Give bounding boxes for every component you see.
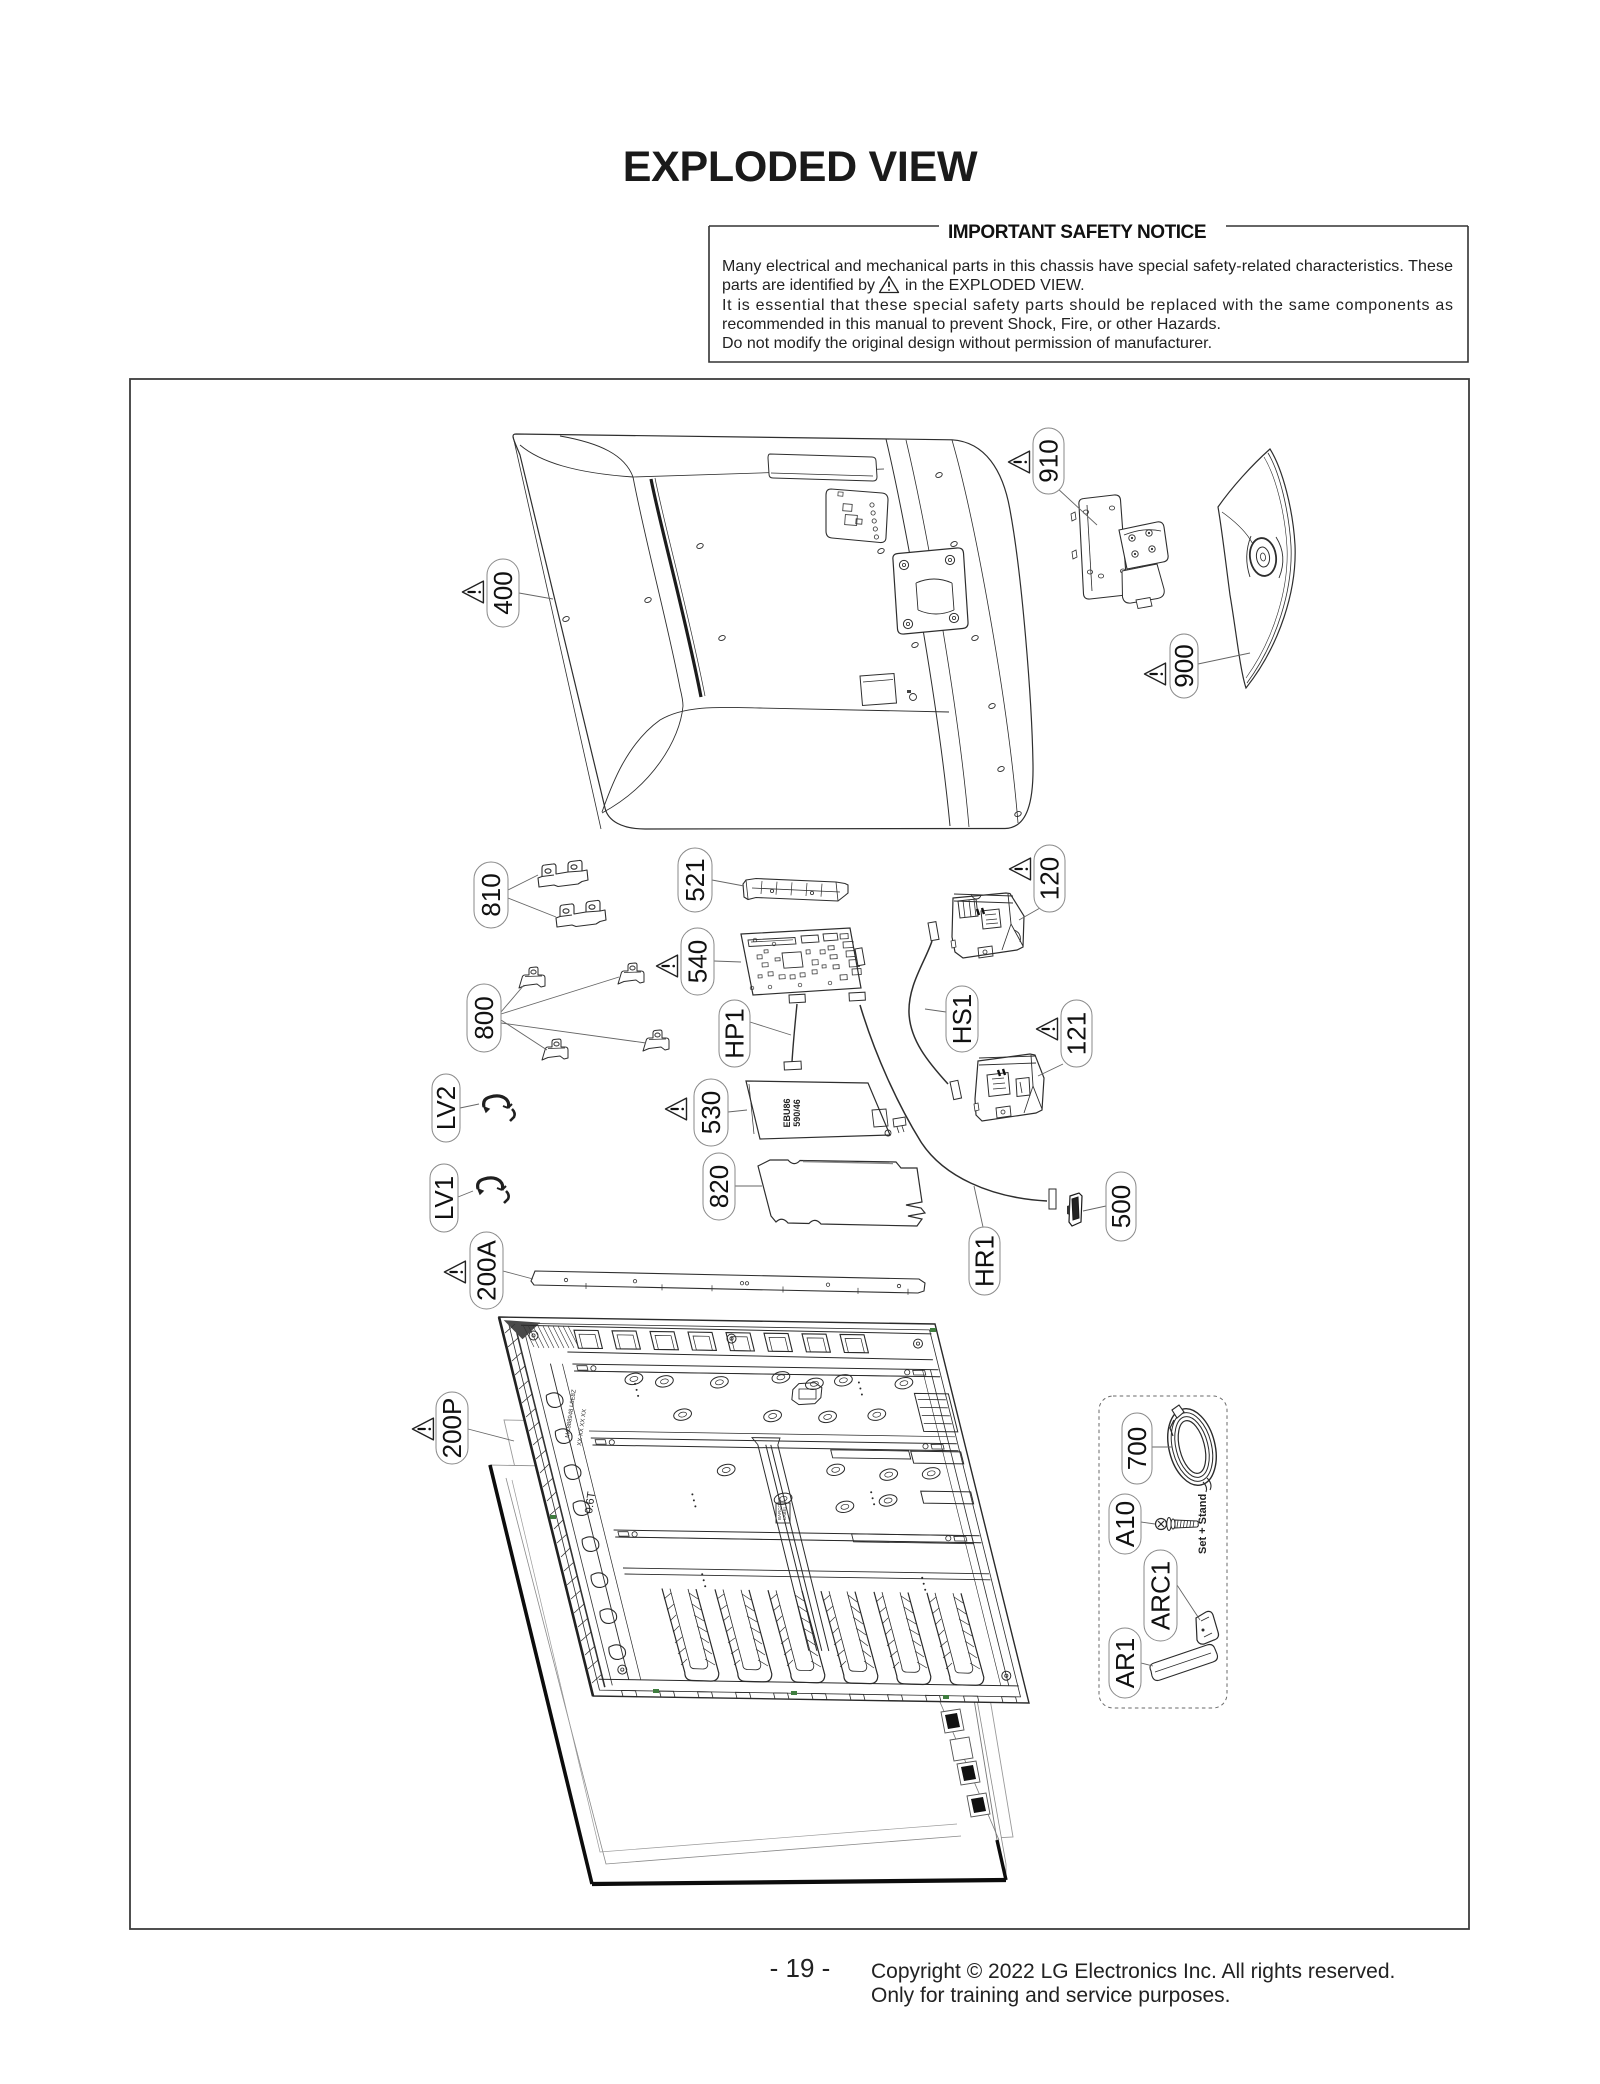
svg-text:121: 121 xyxy=(1062,1012,1092,1055)
svg-text:LV2: LV2 xyxy=(431,1086,461,1130)
svg-text:530: 530 xyxy=(696,1091,726,1134)
svg-text:540: 540 xyxy=(683,940,713,983)
svg-text:It is essential that these spe: It is essential that these special safet… xyxy=(722,297,1453,314)
svg-text:LV1: LV1 xyxy=(429,1176,459,1220)
svg-text:Copyright © 2022 LG Electronic: Copyright © 2022 LG Electronics Inc. All… xyxy=(871,1960,1395,1983)
svg-text:700: 700 xyxy=(1122,1427,1152,1470)
svg-text:Do not modify the original des: Do not modify the original design withou… xyxy=(722,335,1212,352)
svg-text:Only for training and service: Only for training and service purposes. xyxy=(871,1984,1231,2007)
svg-text:in the EXPLODED VIEW.: in the EXPLODED VIEW. xyxy=(905,277,1085,294)
svg-text:820: 820 xyxy=(704,1165,734,1208)
svg-text:HP1: HP1 xyxy=(720,1008,750,1059)
svg-text:590/46: 590/46 xyxy=(792,1099,802,1127)
svg-text:- 19 -: - 19 - xyxy=(770,1953,831,1983)
svg-text:ARC1: ARC1 xyxy=(1146,1561,1176,1630)
svg-text:parts are identified by: parts are identified by xyxy=(722,277,875,294)
svg-text:EBU86: EBU86 xyxy=(782,1098,792,1127)
svg-text:910: 910 xyxy=(1034,439,1064,482)
svg-text:120: 120 xyxy=(1035,857,1065,900)
svg-text:recommended in this manual to: recommended in this manual to prevent Sh… xyxy=(722,316,1221,333)
svg-text:900: 900 xyxy=(1169,644,1199,687)
svg-text:A10: A10 xyxy=(1110,1501,1140,1547)
svg-text:AR1: AR1 xyxy=(1110,1638,1140,1689)
svg-text:521: 521 xyxy=(680,858,710,901)
svg-text:400: 400 xyxy=(488,571,518,614)
svg-text:Many electrical and mechanical: Many electrical and mechanical parts in … xyxy=(722,258,1453,275)
svg-text:HS1: HS1 xyxy=(947,994,977,1045)
svg-text:LABEL: LABEL xyxy=(782,1505,787,1520)
svg-text:Set + Stand: Set + Stand xyxy=(1197,1494,1209,1554)
svg-text:800: 800 xyxy=(469,996,499,1039)
svg-text:IMPORTANT SAFETY NOTICE: IMPORTANT SAFETY NOTICE xyxy=(948,222,1206,243)
svg-text:200A: 200A xyxy=(472,1239,502,1300)
svg-text:HR1: HR1 xyxy=(970,1235,1000,1287)
svg-text:500: 500 xyxy=(1106,1185,1136,1228)
svg-text:EXPLODED VIEW: EXPLODED VIEW xyxy=(623,143,978,191)
svg-text:200P: 200P xyxy=(437,1398,467,1459)
svg-text:810: 810 xyxy=(476,873,506,916)
